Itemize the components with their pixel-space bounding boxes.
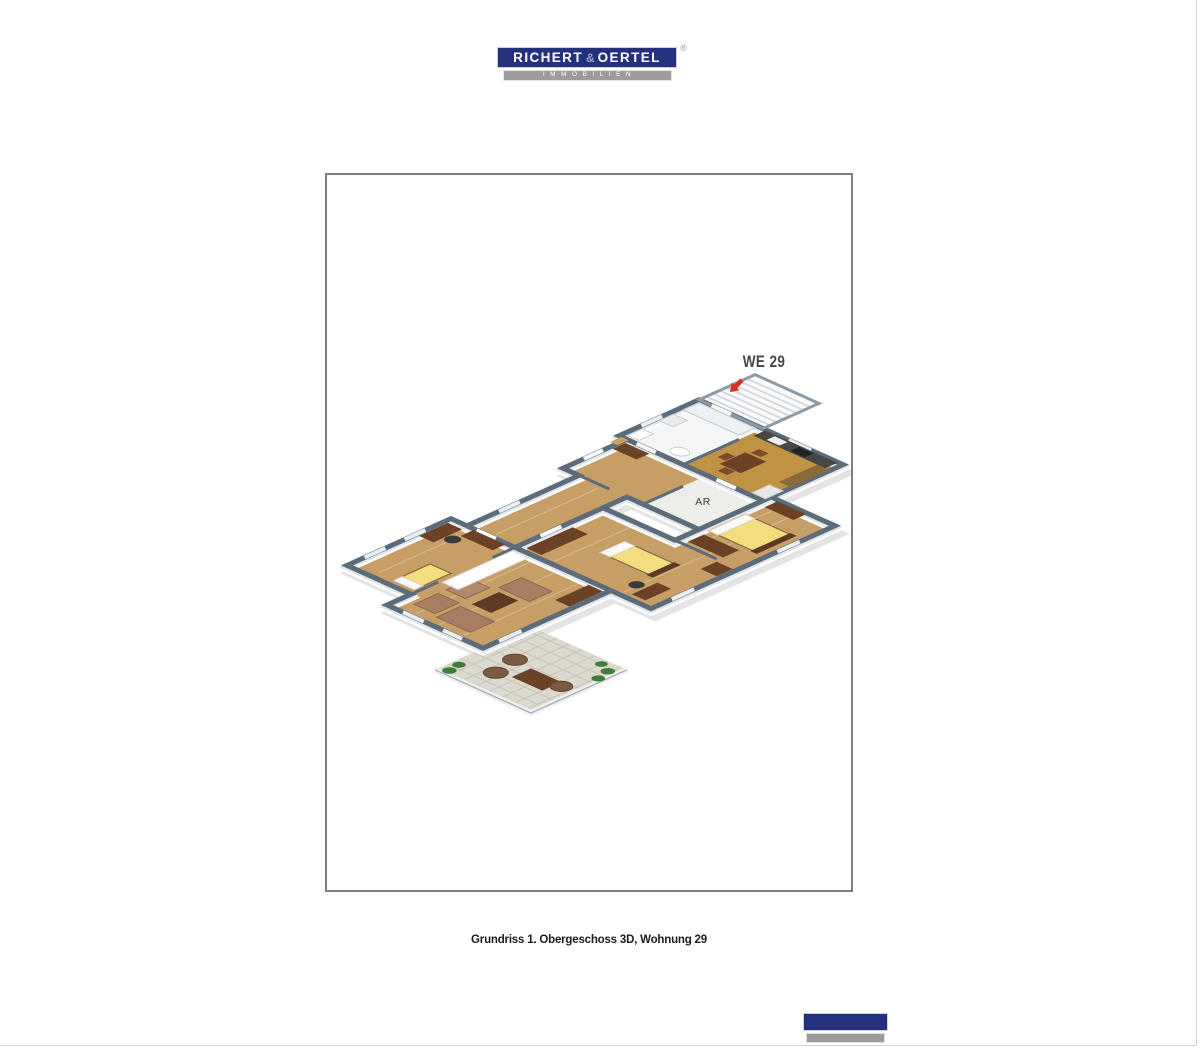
floorplan-frame: WE 29 AR	[325, 173, 853, 892]
document-page: RICHERT & OERTEL ® IMMOBILIEN	[0, 0, 1200, 1050]
logo-subtitle: IMMOBILIEN	[538, 72, 636, 79]
logo-word2: OERTEL	[598, 51, 661, 65]
footer-logo-blue-bar	[803, 1013, 888, 1031]
page-bottom-edge	[0, 1045, 1197, 1046]
storage-room-label: AR	[695, 496, 711, 508]
logo-ampersand: &	[583, 52, 598, 64]
logo-name-bar: RICHERT & OERTEL ®	[497, 47, 677, 68]
page-right-edge	[1196, 0, 1197, 1046]
footer-logo-gray-bar	[806, 1033, 885, 1043]
registered-trademark: ®	[680, 43, 687, 53]
unit-label: WE 29	[743, 353, 786, 372]
floorplan-3d-image: WE 29 AR	[327, 175, 851, 890]
plan-caption: Grundriss 1. Obergeschoss 3D, Wohnung 29	[325, 934, 853, 946]
logo-subtitle-bar: IMMOBILIEN	[503, 70, 672, 81]
logo-word1: RICHERT	[513, 51, 583, 65]
company-logo: RICHERT & OERTEL ® IMMOBILIEN	[497, 47, 677, 81]
